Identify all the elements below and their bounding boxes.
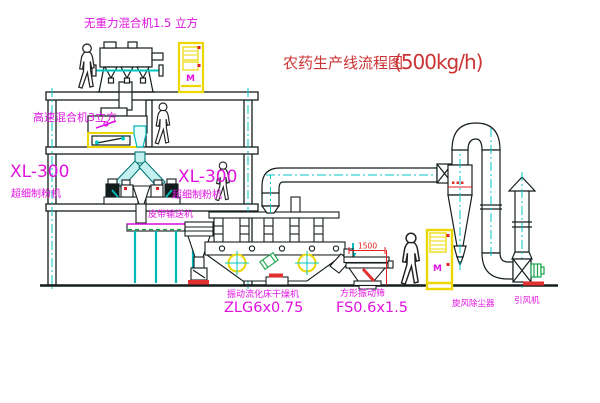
worker-figure-ground	[401, 233, 419, 284]
diagram-canvas: M	[0, 0, 600, 403]
label-sieve-model: FS0.6x1.5	[336, 300, 408, 316]
conveyor-legs	[135, 231, 193, 283]
worker-figure-top-floor	[79, 44, 94, 88]
process-flow-diagram: M	[0, 0, 600, 403]
diagram-title: 农药生产线流程图	[283, 54, 403, 72]
indicator-dot	[198, 64, 201, 67]
worker-figure-second-floor	[155, 103, 169, 144]
diagram-title-capacity: (500kg/h)	[394, 50, 483, 74]
label-high-speed-mixer: 高速混合机3立方	[33, 110, 117, 124]
label-cyclone: 旋风除尘器	[452, 298, 495, 309]
label-gravity-mixer: 无重力混合机1.5 立方	[84, 16, 198, 30]
induced-draft-fan	[513, 259, 544, 286]
label-mill-left-name: 超细制粉机	[11, 187, 61, 200]
indicator-dot	[447, 234, 450, 237]
label-dryer-name: 振动流化床干燥机	[227, 288, 299, 300]
label-mill-center-name: 超细制粉机	[172, 188, 222, 201]
indicator-dot	[447, 263, 450, 266]
control-cabinet-1: M	[179, 43, 203, 92]
label-mill-left-model: XL-300	[10, 162, 69, 182]
cabinet1-motor-mark: M	[186, 74, 195, 84]
label-dryer-model: ZLG6x0.75	[224, 300, 303, 316]
label-mill-center-model: XL-300	[178, 167, 237, 187]
sieve-width-dimension: 1500	[358, 242, 377, 251]
exhaust-duct	[262, 168, 448, 213]
indicator-dot	[198, 46, 201, 49]
cabinet2-motor-mark: M	[433, 264, 442, 274]
label-belt-conveyor: 皮带输送机	[148, 208, 193, 220]
label-sieve-name: 方形振动筛	[340, 287, 385, 299]
label-fan: 引风机	[514, 295, 540, 306]
control-cabinet-2: M	[427, 230, 452, 289]
